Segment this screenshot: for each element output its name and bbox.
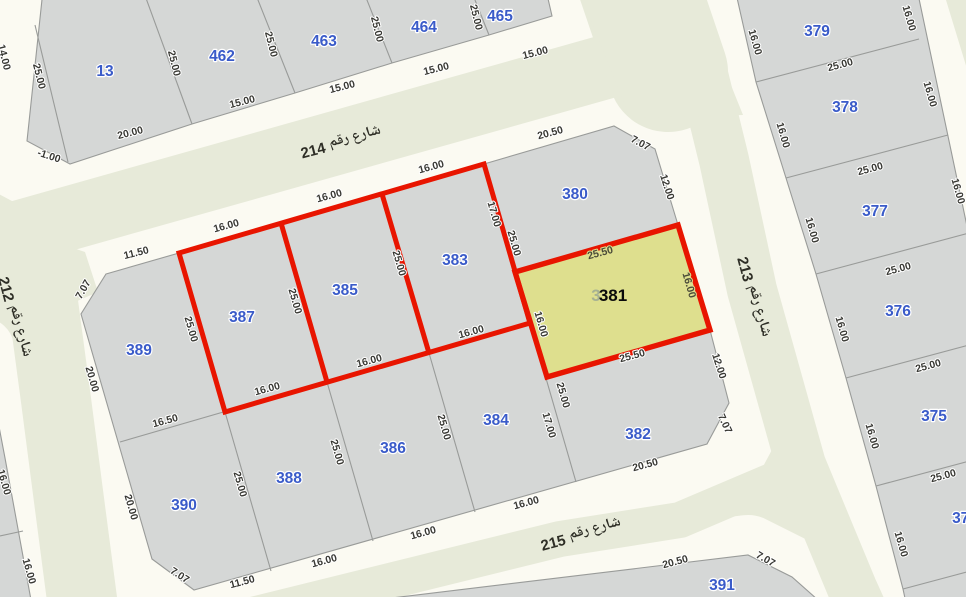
svg-text:391: 391 bbox=[709, 577, 735, 594]
svg-text:388: 388 bbox=[276, 470, 302, 487]
svg-text:384: 384 bbox=[483, 412, 509, 429]
svg-text:462: 462 bbox=[209, 48, 235, 65]
svg-text:375: 375 bbox=[921, 408, 947, 425]
svg-text:378: 378 bbox=[832, 99, 858, 116]
svg-text:385: 385 bbox=[332, 282, 358, 299]
svg-text:389: 389 bbox=[126, 342, 152, 359]
svg-text:463: 463 bbox=[311, 33, 337, 50]
svg-text:386: 386 bbox=[380, 440, 406, 457]
svg-text:380: 380 bbox=[562, 186, 588, 203]
svg-text:464: 464 bbox=[411, 19, 437, 36]
svg-text:13: 13 bbox=[96, 63, 114, 80]
svg-text:465: 465 bbox=[487, 8, 513, 25]
svg-text:390: 390 bbox=[171, 497, 197, 514]
svg-text:387: 387 bbox=[229, 309, 255, 326]
svg-text:376: 376 bbox=[885, 303, 911, 320]
svg-text:381: 381 bbox=[599, 286, 627, 305]
svg-text:377: 377 bbox=[862, 203, 888, 220]
svg-text:379: 379 bbox=[804, 23, 830, 40]
svg-text:374: 374 bbox=[952, 510, 966, 527]
svg-text:383: 383 bbox=[442, 252, 468, 269]
svg-text:382: 382 bbox=[625, 426, 651, 443]
